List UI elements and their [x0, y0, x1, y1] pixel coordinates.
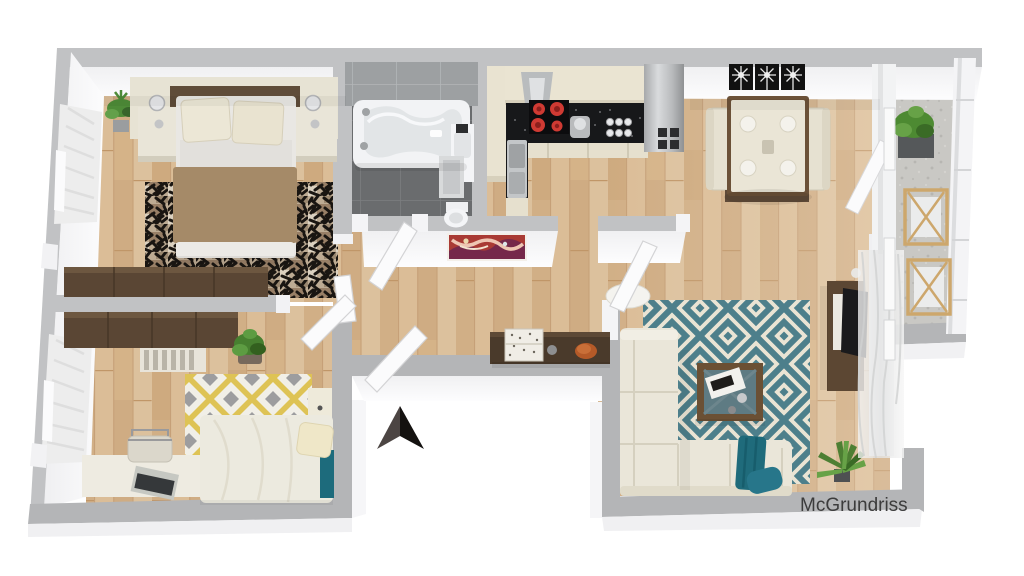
svg-text:McGrundriss: McGrundriss	[800, 495, 908, 516]
